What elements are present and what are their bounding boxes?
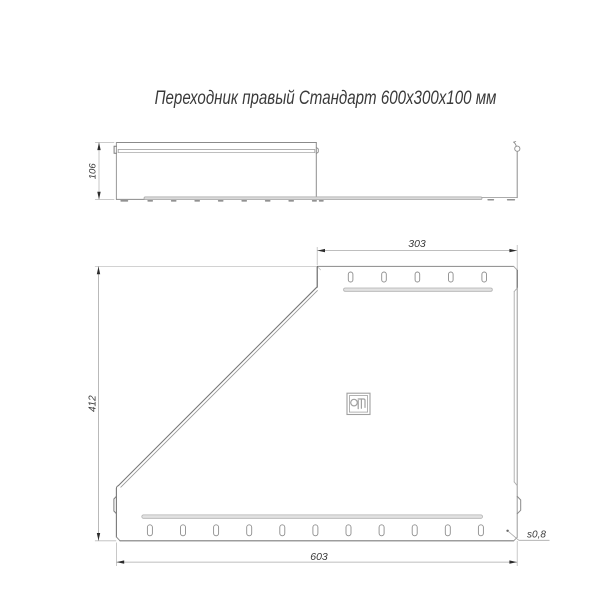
svg-text:303: 303 [408,238,426,250]
svg-text:412: 412 [87,395,98,412]
svg-text:603: 603 [310,551,328,563]
svg-text:106: 106 [87,163,98,180]
svg-text:Переходник правый Стандарт 600: Переходник правый Стандарт 600х300х100 м… [155,86,497,108]
svg-text:s0,8: s0,8 [527,530,546,541]
